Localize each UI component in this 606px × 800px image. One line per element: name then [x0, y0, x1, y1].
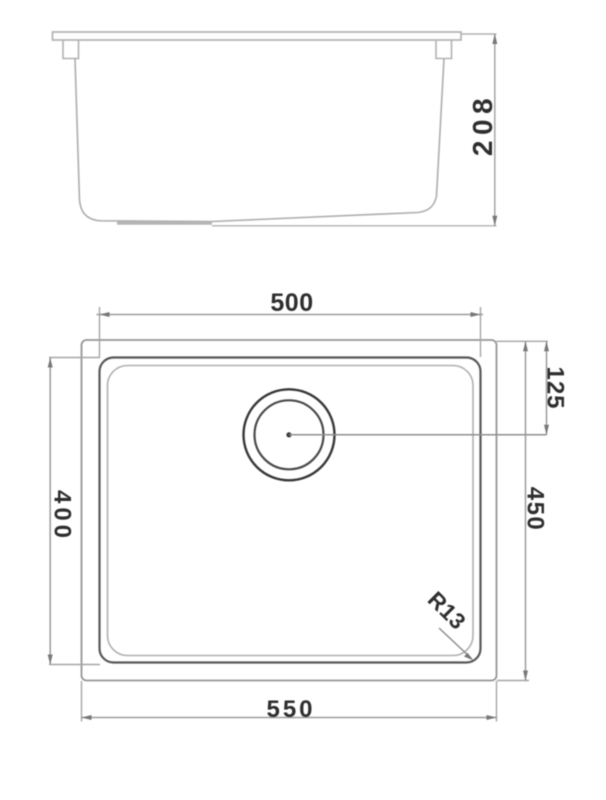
- svg-text:125: 125: [542, 366, 569, 409]
- svg-text:400: 400: [49, 490, 76, 542]
- svg-text:500: 500: [270, 289, 313, 317]
- svg-text:550: 550: [266, 696, 315, 723]
- svg-text:450: 450: [522, 487, 549, 532]
- svg-text:208: 208: [467, 93, 498, 156]
